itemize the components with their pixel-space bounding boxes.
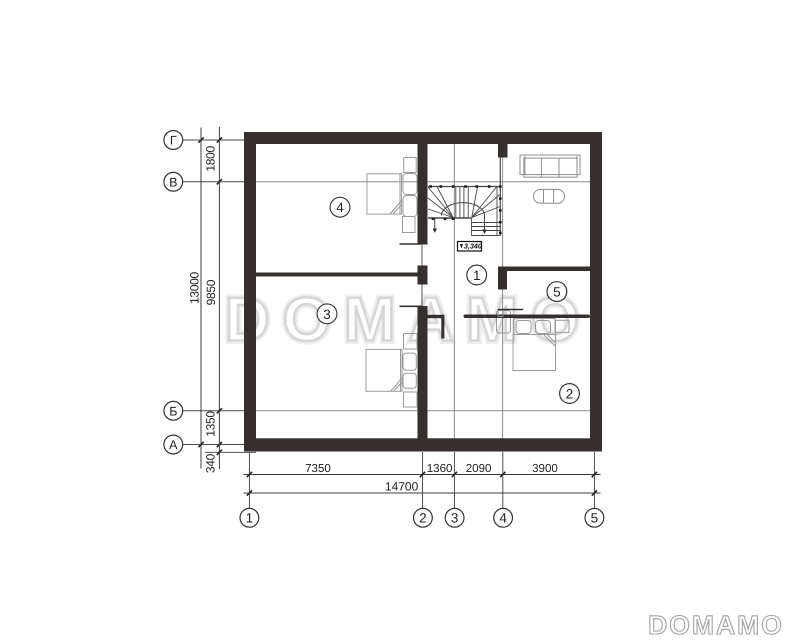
svg-text:А: А [169,438,178,452]
svg-text:DOMAMO: DOMAMO [225,286,592,355]
svg-text:13000: 13000 [188,271,202,303]
svg-text:3900: 3900 [532,462,558,475]
svg-text:В: В [169,175,177,189]
svg-text:5: 5 [591,511,599,526]
svg-text:5: 5 [553,285,561,300]
svg-text:9850: 9850 [204,279,218,305]
svg-text:3: 3 [323,307,331,322]
svg-text:1360: 1360 [427,462,453,475]
svg-text:1: 1 [246,511,254,526]
svg-text:2090: 2090 [466,462,492,475]
svg-text:340: 340 [204,453,218,473]
svg-text:4: 4 [499,511,507,526]
svg-text:Б: Б [169,404,177,418]
svg-text:3,340: 3,340 [464,242,482,251]
svg-text:DOMAMO: DOMAMO [648,610,784,640]
svg-text:2: 2 [419,511,427,526]
svg-text:14700: 14700 [385,479,419,493]
svg-text:2: 2 [566,386,574,401]
svg-text:3: 3 [451,511,459,526]
svg-text:1800: 1800 [204,146,218,172]
svg-text:1: 1 [473,268,481,283]
svg-text:1350: 1350 [204,411,218,437]
svg-text:7350: 7350 [305,462,331,475]
svg-text:Г: Г [170,134,177,148]
svg-text:4: 4 [336,200,344,215]
